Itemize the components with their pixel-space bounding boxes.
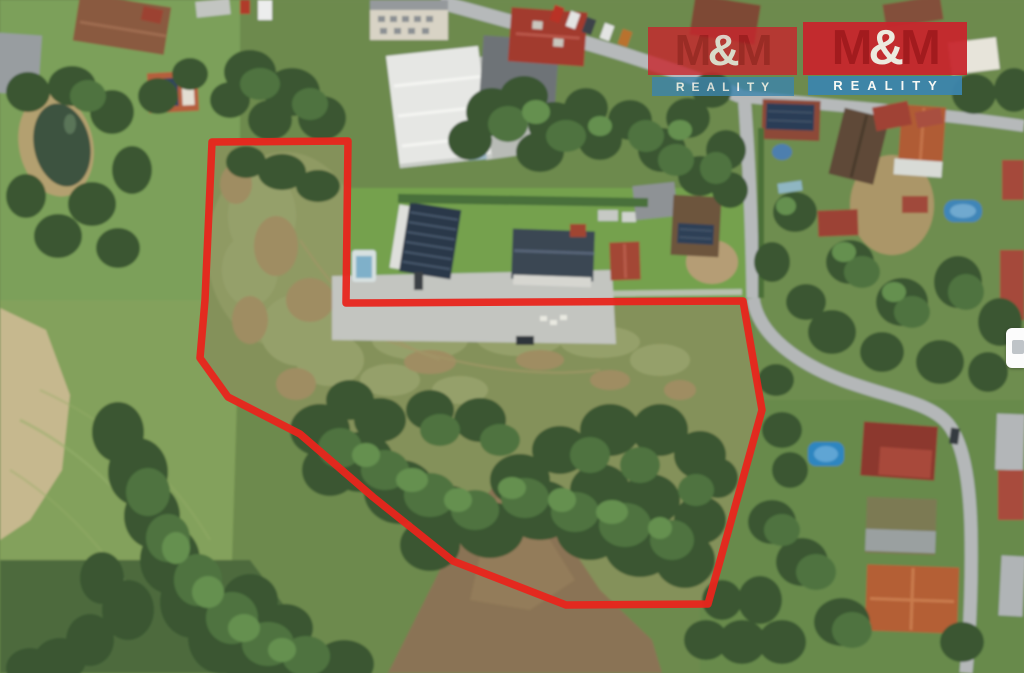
tall-building [370, 0, 448, 40]
logo-letter: M [736, 29, 770, 73]
mm-reality-logo-right: M&M REALITY [803, 22, 967, 95]
house-olive-flat [865, 497, 937, 555]
house-solar-right [761, 99, 820, 141]
mm-reality-logo-left: M&M REALITY [648, 27, 797, 96]
aerial-photo: M&M REALITY M&M REALITY [0, 0, 1024, 673]
pool-bottom-right [808, 442, 844, 466]
house-red-bottom-right [860, 422, 938, 481]
building-gable-gray [511, 229, 595, 288]
aerial-scene [0, 0, 1024, 673]
house-orange-large [865, 564, 959, 633]
logo-ampersand: & [708, 29, 738, 73]
mm-logo-mark: M&M [648, 27, 797, 75]
button-glyph-icon [1012, 340, 1024, 354]
logo-reality-bar: REALITY [652, 77, 794, 96]
house-brown-solar [670, 195, 721, 257]
map-widget-partial[interactable] [1006, 328, 1024, 368]
logo-letter: M [675, 29, 709, 73]
logo-reality-bar: REALITY [808, 76, 962, 95]
mm-logo-mark: M&M [803, 22, 967, 75]
logo-letter: M [832, 24, 870, 73]
logo-letter: M [900, 24, 938, 73]
logo-ampersand: & [869, 24, 902, 73]
pool-right [944, 200, 982, 222]
house-red [609, 242, 640, 281]
terrain [0, 0, 1024, 673]
